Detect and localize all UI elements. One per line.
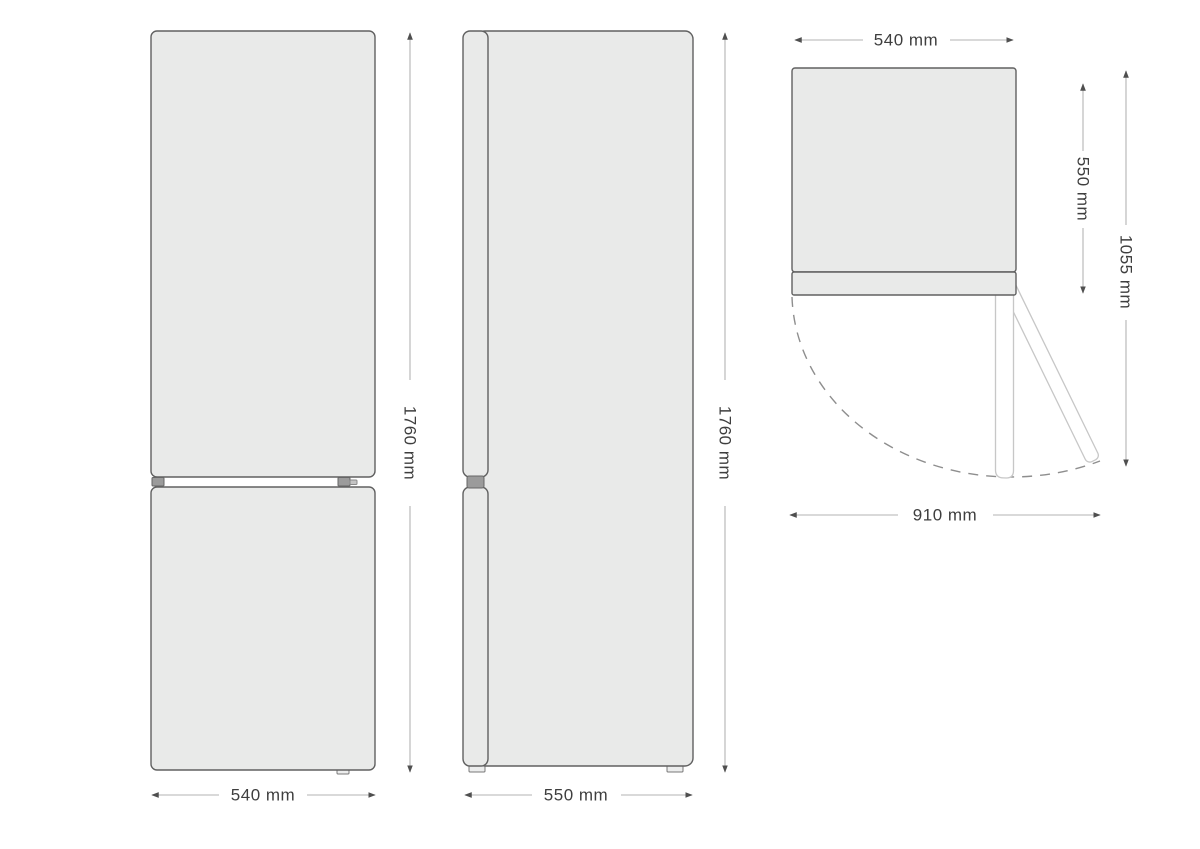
top-width-label: 540 mm — [874, 31, 938, 50]
door-open-max — [1002, 281, 1101, 463]
top-open-depth-label: 1055 mm — [1117, 235, 1136, 309]
top-view — [792, 68, 1100, 478]
front-hinge-right — [338, 478, 350, 487]
side-middle-hinge — [467, 476, 484, 488]
front-height-label: 1760 mm — [401, 406, 420, 480]
front-hinge-left — [152, 478, 164, 487]
side-lower-door-edge — [463, 487, 488, 766]
top-open-width-label: 910 mm — [913, 506, 977, 525]
front-width-label: 540 mm — [231, 786, 295, 805]
side-view — [463, 31, 693, 772]
top-open-width-dimension: 910 mm — [790, 506, 1100, 525]
front-hinge-nub — [350, 480, 357, 485]
front-lower-door — [151, 487, 375, 770]
side-body — [477, 31, 693, 766]
front-height-dimension: 1760 mm — [401, 33, 420, 772]
side-height-dimension: 1760 mm — [716, 33, 735, 772]
side-depth-dimension: 550 mm — [465, 786, 692, 805]
front-upper-door — [151, 31, 375, 477]
top-depth-dimension: 550 mm — [1074, 84, 1093, 293]
top-body — [792, 68, 1016, 272]
top-closed-door — [792, 272, 1016, 295]
side-height-label: 1760 mm — [716, 406, 735, 480]
top-depth-label: 550 mm — [1074, 157, 1093, 221]
front-width-dimension: 540 mm — [152, 786, 375, 805]
side-upper-door-edge — [463, 31, 488, 477]
door-open-90 — [996, 295, 1014, 478]
top-width-dimension: 540 mm — [795, 31, 1013, 50]
fridge-dimension-diagram: 1760 mm 540 mm 1760 mm 550 mm — [0, 0, 1200, 849]
diagram-svg: 1760 mm 540 mm 1760 mm 550 mm — [0, 0, 1200, 849]
top-open-depth-dimension: 1055 mm — [1117, 71, 1136, 466]
side-depth-label: 550 mm — [544, 786, 608, 805]
front-view — [151, 31, 375, 774]
